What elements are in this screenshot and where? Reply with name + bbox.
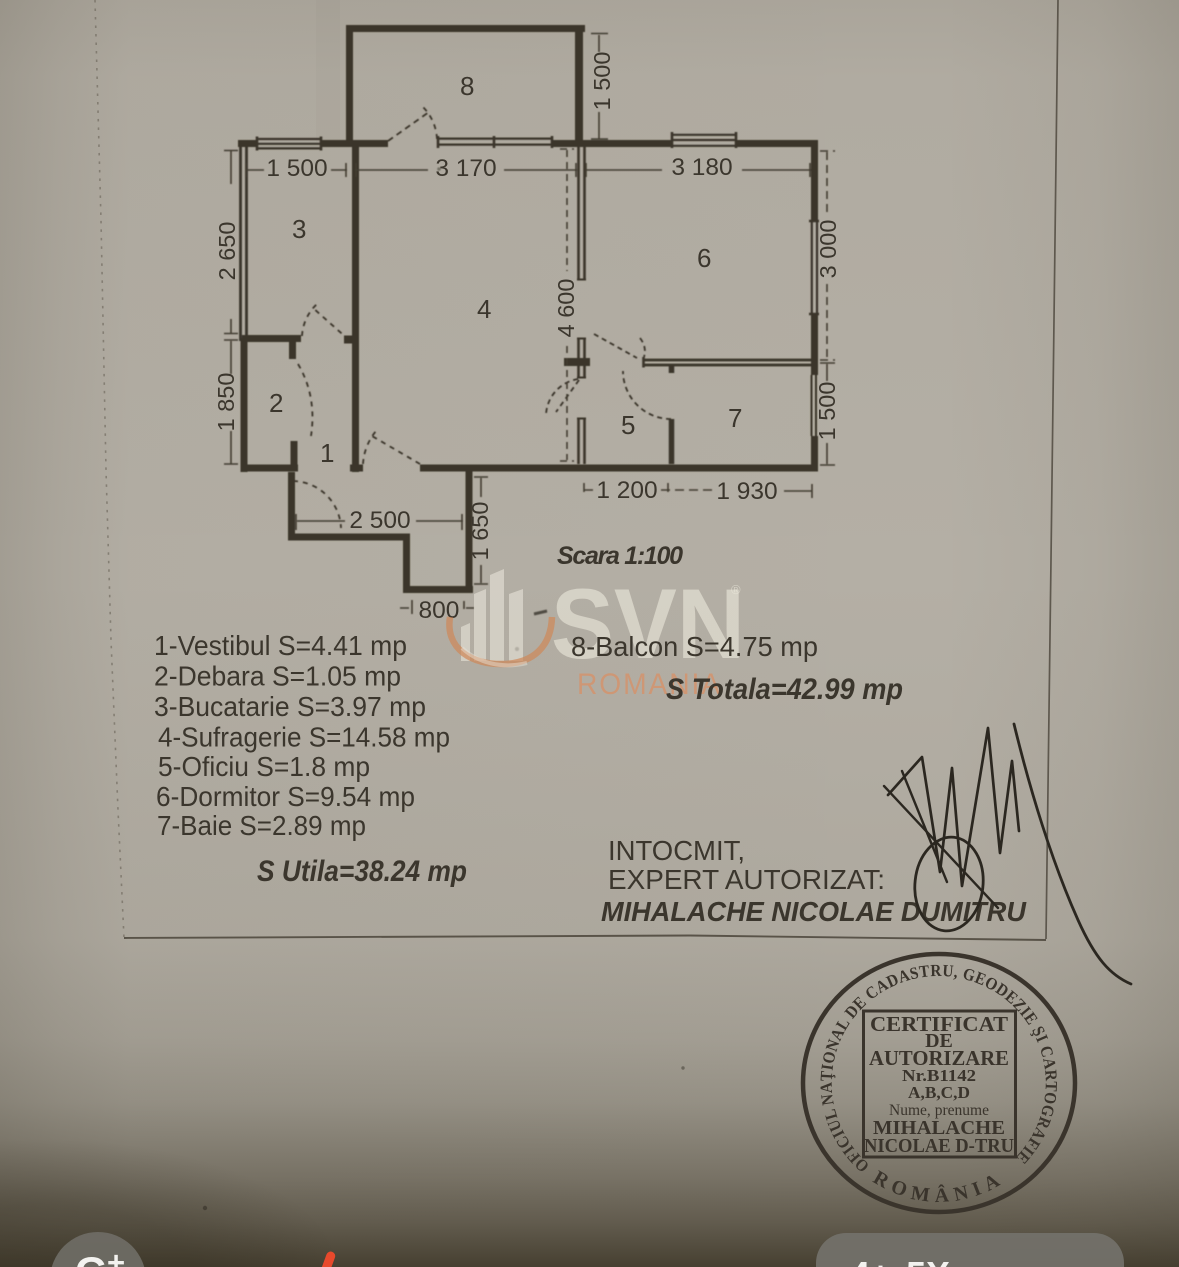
svg-text:Scara 1:100: Scara 1:100 [557, 542, 683, 570]
svg-text:®: ® [731, 582, 741, 597]
svg-text:8-Balcon S=4.75 mp: 8-Balcon S=4.75 mp [571, 631, 818, 662]
svg-text:INTOCMIT,: INTOCMIT, [608, 835, 745, 866]
svg-text:2 650: 2 650 [214, 222, 240, 281]
svg-text:1-Vestibul S=4.41 mp: 1-Vestibul S=4.41 mp [154, 630, 407, 661]
svg-text:8: 8 [460, 71, 474, 101]
svg-text:5-Oficiu S=1.8 mp: 5-Oficiu S=1.8 mp [158, 751, 370, 782]
svg-text:2: 2 [269, 388, 283, 418]
svg-text:7: 7 [728, 403, 742, 433]
svg-text:A,B,C,D: A,B,C,D [908, 1083, 970, 1102]
svg-text:MIHALACHE NICOLAE DUMITRU: MIHALACHE NICOLAE DUMITRU [601, 896, 1027, 927]
svg-text:5: 5 [621, 410, 635, 440]
svg-text:6: 6 [697, 243, 711, 273]
svg-text:2-Debara S=1.05 mp: 2-Debara S=1.05 mp [154, 661, 401, 692]
svg-text:G: G [75, 1248, 108, 1267]
svg-text:1 930: 1 930 [716, 478, 777, 505]
svg-text:1: 1 [320, 438, 334, 468]
svg-text:3 000: 3 000 [815, 220, 841, 279]
svg-text:3 170: 3 170 [435, 155, 496, 182]
svg-text:5X: 5X [906, 1254, 950, 1267]
svg-text:3 180: 3 180 [671, 154, 732, 181]
svg-text:7-Baie S=2.89 mp: 7-Baie S=2.89 mp [157, 810, 366, 841]
svg-text:1 650: 1 650 [467, 502, 493, 561]
svg-text:3: 3 [292, 214, 306, 244]
svg-text:+: + [107, 1245, 125, 1267]
svg-text:6-Dormitor S=9.54 mp: 6-Dormitor S=9.54 mp [156, 781, 415, 812]
svg-text:1 500: 1 500 [266, 155, 327, 182]
svg-text:S Utila=38.24 mp: S Utila=38.24 mp [257, 855, 467, 888]
svg-text:4: 4 [477, 294, 491, 324]
svg-text:4+: 4+ [850, 1254, 891, 1267]
svg-text:1 500: 1 500 [814, 382, 840, 441]
svg-text:1 500: 1 500 [589, 52, 615, 111]
svg-text:NICOLAE D-TRU: NICOLAE D-TRU [864, 1135, 1014, 1157]
svg-text:800: 800 [419, 597, 460, 624]
svg-text:1 200: 1 200 [596, 477, 657, 504]
svg-text:4-Sufragerie S=14.58 mp: 4-Sufragerie S=14.58 mp [158, 722, 450, 753]
svg-text:4 600: 4 600 [553, 279, 579, 338]
svg-text:S Totala=42.99 mp: S Totala=42.99 mp [666, 673, 903, 706]
svg-text:EXPERT AUTORIZAT:: EXPERT AUTORIZAT: [608, 864, 885, 895]
svg-text:SVN: SVN [551, 568, 745, 679]
svg-text:3-Bucatarie S=3.97 mp: 3-Bucatarie S=3.97 mp [154, 691, 426, 722]
svg-text:2 500: 2 500 [349, 507, 410, 534]
svg-text:1 850: 1 850 [213, 373, 239, 432]
